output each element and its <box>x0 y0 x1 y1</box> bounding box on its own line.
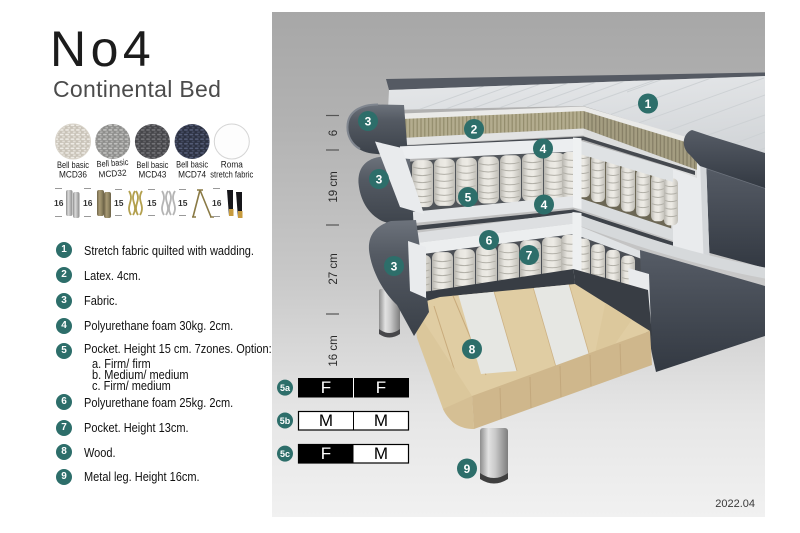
svg-text:3: 3 <box>365 114 372 128</box>
svg-text:3: 3 <box>376 172 383 186</box>
svg-text:4: 4 <box>541 198 548 212</box>
svg-text:19 cm: 19 cm <box>328 171 340 202</box>
svg-text:8: 8 <box>469 342 476 356</box>
svg-text:2022.04: 2022.04 <box>715 498 755 510</box>
svg-text:2: 2 <box>471 122 478 136</box>
svg-text:F: F <box>321 444 331 463</box>
svg-text:M: M <box>319 411 333 430</box>
svg-text:M: M <box>374 444 388 463</box>
svg-text:M: M <box>374 411 388 430</box>
svg-text:1: 1 <box>645 97 652 111</box>
svg-text:16 cm: 16 cm <box>328 335 340 366</box>
svg-text:5c: 5c <box>280 449 290 459</box>
svg-text:4: 4 <box>540 142 547 156</box>
svg-text:F: F <box>321 378 331 397</box>
svg-text:9: 9 <box>464 462 471 476</box>
svg-text:6: 6 <box>328 130 340 136</box>
svg-text:7: 7 <box>526 248 533 262</box>
svg-text:5b: 5b <box>280 416 291 426</box>
svg-text:6: 6 <box>486 233 493 247</box>
svg-text:5: 5 <box>465 190 472 204</box>
svg-text:3: 3 <box>391 259 398 273</box>
svg-text:F: F <box>376 378 386 397</box>
svg-text:5a: 5a <box>280 383 291 393</box>
svg-text:27 cm: 27 cm <box>328 253 340 284</box>
